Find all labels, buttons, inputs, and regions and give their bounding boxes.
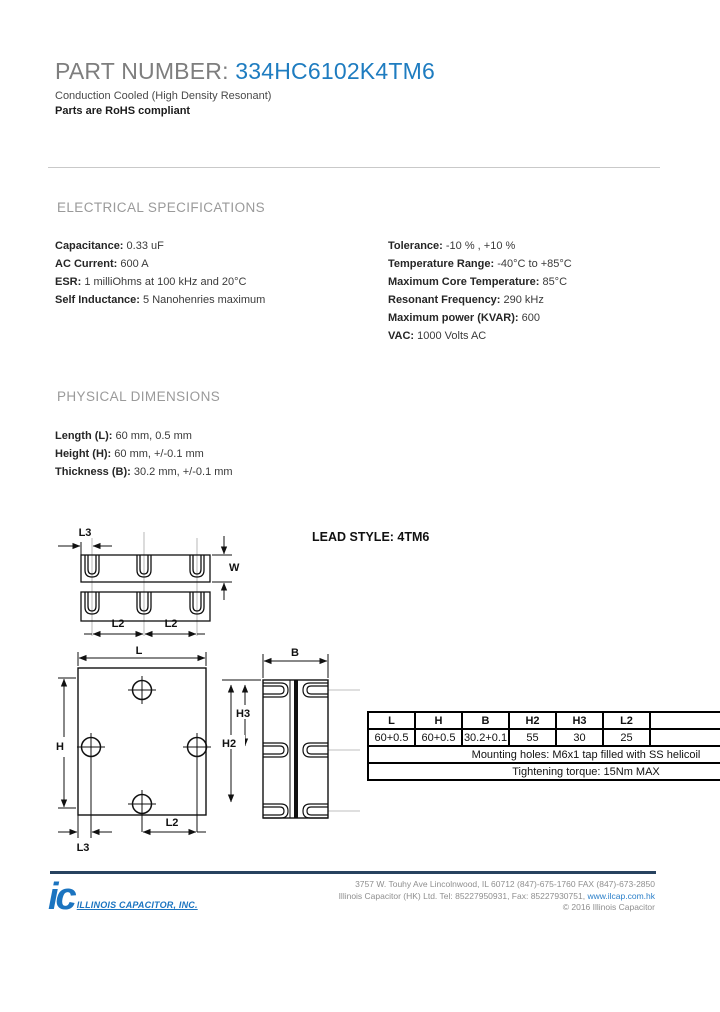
dim-label-h2: H2	[222, 738, 236, 750]
spec-resonant-frequency: Resonant Frequency: 290 kHz	[388, 291, 688, 309]
spec-vac: VAC: 1000 Volts AC	[388, 327, 688, 345]
electrical-specs-left-column: Capacitance: 0.33 uF AC Current: 600 A E…	[55, 237, 375, 309]
footer-address-line1: 3757 W. Touhy Ave Lincolnwood, IL 60712 …	[235, 879, 655, 891]
col-header-h: H	[415, 712, 462, 729]
dim-label-h3: H3	[236, 708, 250, 720]
part-number-value: 334HC6102K4TM6	[235, 58, 435, 84]
dim-label-h: H	[56, 741, 64, 753]
page-title: PART NUMBER: 334HC6102K4TM6	[55, 58, 435, 85]
front-view-drawing: L H L2 L3	[46, 642, 226, 862]
footer-copyright: © 2016 Illinois Capacitor	[235, 902, 655, 914]
electrical-specs-right-column: Tolerance: -10 % , +10 % Temperature Ran…	[388, 237, 688, 345]
ic-logo-icon: ic	[48, 882, 74, 912]
website-link[interactable]: www.ilcap.com.hk	[587, 891, 655, 901]
dim-label-l2-front: L2	[166, 817, 179, 829]
side-view-drawing: B H3 H2	[222, 642, 362, 832]
col-header-h3: H3	[556, 712, 603, 729]
value-b: 30.2+0.1	[462, 729, 509, 746]
header-divider	[48, 167, 660, 168]
value-h3: 30	[556, 729, 603, 746]
value-h: 60+0.5	[415, 729, 462, 746]
dim-label-l3-front: L3	[77, 842, 90, 854]
dim-label-l2-left: L2	[112, 618, 125, 630]
dimension-table: L H B H2 H3 L2 60+0.5 60+0.5 30.2+0.1 55…	[367, 711, 720, 781]
physical-dimensions-heading: PHYSICAL DIMENSIONS	[57, 389, 220, 404]
spec-ac-current: AC Current: 600 A	[55, 255, 375, 273]
dimension-table-header-row: L H B H2 H3 L2	[368, 712, 720, 729]
dim-label-l3-top: L3	[79, 527, 92, 539]
value-l2: 25	[603, 729, 650, 746]
spec-temperature-range: Temperature Range: -40°C to +85°C	[388, 255, 688, 273]
spec-max-power: Maximum power (KVAR): 600	[388, 309, 688, 327]
col-header-l2: L2	[603, 712, 650, 729]
rohs-note: Parts are RoHS compliant	[55, 105, 190, 117]
footer-contact-block: 3757 W. Touhy Ave Lincolnwood, IL 60712 …	[235, 879, 655, 914]
col-header-l: L	[368, 712, 415, 729]
tightening-torque-row: Tightening torque: 15Nm MAX	[368, 763, 720, 780]
dim-label-w: W	[229, 562, 240, 574]
spec-self-inductance: Self Inductance: 5 Nanohenries maximum	[55, 291, 375, 309]
spec-esr: ESR: 1 milliOhms at 100 kHz and 20°C	[55, 273, 375, 291]
dim-label-l2-right: L2	[165, 618, 178, 630]
value-clipped	[650, 729, 720, 746]
dim-label-b: B	[291, 647, 299, 659]
dim-thickness: Thickness (B): 30.2 mm, +/-0.1 mm	[55, 463, 375, 481]
company-logo: ic ILLINOIS CAPACITOR, INC.	[48, 882, 198, 912]
dim-height: Height (H): 60 mm, +/-0.1 mm	[55, 445, 375, 463]
value-l: 60+0.5	[368, 729, 415, 746]
electrical-specs-heading: ELECTRICAL SPECIFICATIONS	[57, 200, 265, 215]
value-h2: 55	[509, 729, 556, 746]
dim-length: Length (L): 60 mm, 0.5 mm	[55, 427, 375, 445]
dim-label-l: L	[136, 645, 143, 657]
mounting-holes-note: Mounting holes: M6x1 tap filled with SS …	[368, 746, 720, 763]
col-header-b: B	[462, 712, 509, 729]
datasheet-page: PART NUMBER: 334HC6102K4TM6 Conduction C…	[0, 0, 720, 1012]
col-header-h2: H2	[509, 712, 556, 729]
product-subtitle: Conduction Cooled (High Density Resonant…	[55, 90, 271, 102]
company-logo-text: ILLINOIS CAPACITOR, INC.	[77, 900, 198, 910]
spec-max-core-temperature: Maximum Core Temperature: 85°C	[388, 273, 688, 291]
spec-capacitance: Capacitance: 0.33 uF	[55, 237, 375, 255]
footer-divider-bar	[50, 871, 656, 874]
col-header-clipped	[650, 712, 720, 729]
top-view-drawing: L3 W L2 L2	[54, 524, 244, 644]
tightening-torque-note: Tightening torque: 15Nm MAX	[368, 763, 720, 780]
lead-style-label: LEAD STYLE: 4TM6	[312, 530, 429, 544]
mounting-holes-row: Mounting holes: M6x1 tap filled with SS …	[368, 746, 720, 763]
physical-dimensions-list: Length (L): 60 mm, 0.5 mm Height (H): 60…	[55, 427, 375, 481]
part-number-label: PART NUMBER:	[55, 58, 229, 84]
dimension-table-values-row: 60+0.5 60+0.5 30.2+0.1 55 30 25	[368, 729, 720, 746]
footer-address-line2: Illinois Capacitor (HK) Ltd. Tel: 852279…	[235, 891, 655, 903]
spec-tolerance: Tolerance: -10 % , +10 %	[388, 237, 688, 255]
